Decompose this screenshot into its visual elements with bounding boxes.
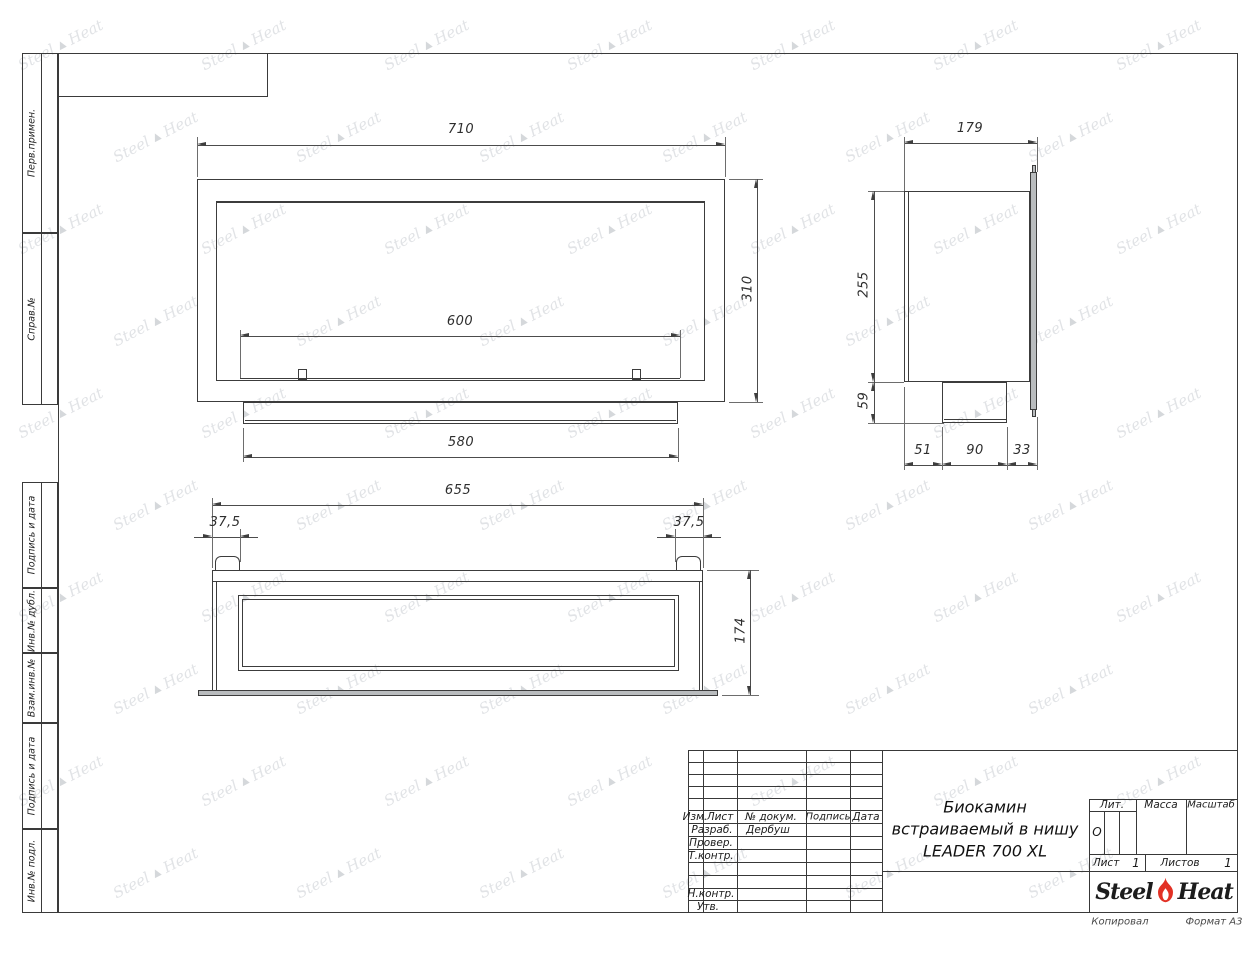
steelheat-logo: Steel Heat — [1091, 873, 1237, 911]
role-checked: Провер. — [689, 837, 733, 849]
role-tcontrol: Т.контр. — [688, 850, 734, 862]
scale-label: Масштаб — [1187, 800, 1235, 811]
revision-col-date: Дата — [852, 811, 879, 823]
revision-col-list: Лист — [707, 811, 734, 823]
format-note: Формат А3 — [1186, 917, 1243, 928]
doc-title-line3: LEADER 700 XL — [923, 842, 1047, 861]
role-approved: Утв. — [697, 901, 719, 913]
sheet-label: Лист — [1093, 857, 1120, 869]
revision-col-izm: Изм. — [683, 811, 708, 823]
doc-title-line1: Биокамин — [943, 798, 1027, 817]
developed-by-value: Дербуш — [746, 824, 790, 836]
doc-title-line2: встраиваемый в нишу — [892, 820, 1079, 839]
revision-col-doc: № докум. — [745, 811, 797, 823]
role-developed: Разраб. — [691, 824, 732, 836]
logo-word-steel: Steel — [1095, 879, 1152, 905]
mass-label: Масса — [1144, 799, 1177, 811]
logo-word-heat: Heat — [1178, 879, 1233, 905]
copied-note: Копировал — [1091, 917, 1148, 928]
title-block: Изм. Лист № докум. Подпись Дата Разраб. … — [0, 0, 1255, 970]
lit-label: Лит. — [1100, 799, 1124, 811]
sheets-total: 1 — [1224, 856, 1232, 870]
sheets-label: Листов — [1160, 857, 1199, 869]
flame-icon — [1155, 876, 1176, 908]
revision-col-sign: Подпись — [806, 812, 851, 823]
lit-value: О — [1092, 825, 1101, 839]
role-ncontrol: Н.контр. — [688, 888, 735, 900]
drawing-sheet: Steel ▲ HeatSteel ▲ HeatSteel ▲ HeatStee… — [0, 0, 1255, 970]
sheet-number: 1 — [1132, 856, 1140, 870]
